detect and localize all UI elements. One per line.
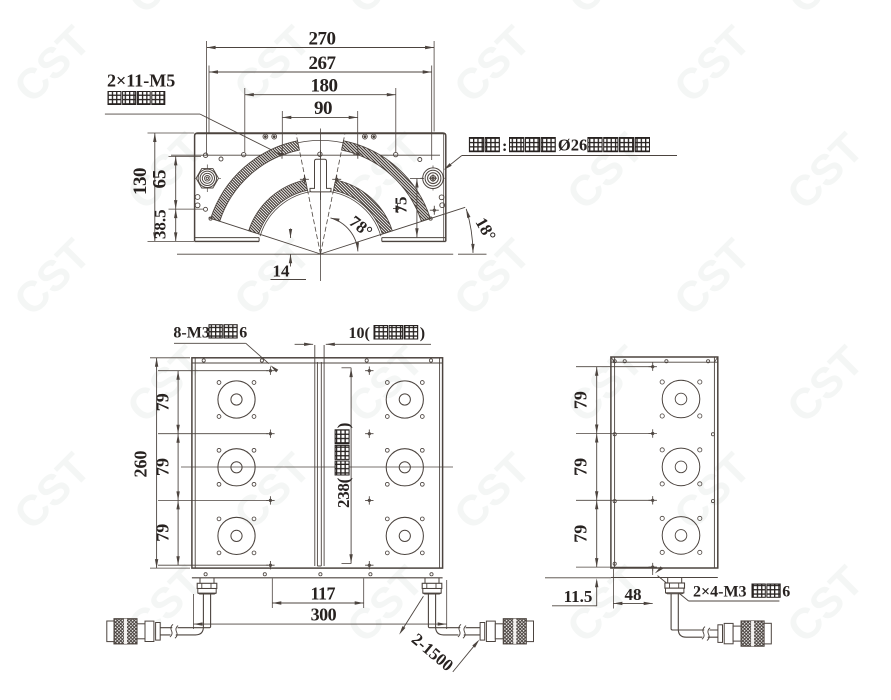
- svg-text:6: 6: [782, 584, 790, 601]
- svg-text:79: 79: [153, 393, 173, 411]
- svg-text:6: 6: [239, 324, 247, 341]
- svg-text:79: 79: [153, 524, 173, 542]
- svg-text:79: 79: [571, 391, 591, 409]
- svg-text:8-M3: 8-M3: [173, 324, 209, 341]
- svg-text:238(: 238(: [334, 477, 353, 508]
- svg-text:65: 65: [150, 170, 171, 189]
- svg-text:2×11-M5: 2×11-M5: [107, 71, 175, 91]
- svg-text:48: 48: [625, 585, 642, 604]
- svg-text:14: 14: [273, 262, 291, 281]
- svg-text:): ): [334, 423, 353, 429]
- svg-text:): ): [420, 325, 425, 342]
- svg-text:79: 79: [571, 525, 591, 543]
- svg-text:300: 300: [311, 605, 337, 625]
- svg-text:180: 180: [311, 76, 338, 97]
- svg-text:117: 117: [311, 583, 336, 603]
- svg-text:Ø26: Ø26: [558, 136, 587, 155]
- svg-text:90: 90: [314, 98, 332, 119]
- svg-text::: :: [502, 138, 507, 155]
- svg-text:2×4-M3: 2×4-M3: [693, 584, 747, 601]
- svg-text:260: 260: [131, 451, 151, 478]
- svg-text:267: 267: [309, 53, 337, 74]
- svg-text:38.5: 38.5: [151, 209, 170, 239]
- svg-text:75: 75: [392, 197, 411, 214]
- svg-text:270: 270: [309, 29, 336, 50]
- svg-text:10(: 10(: [349, 325, 370, 342]
- svg-text:79: 79: [153, 458, 173, 476]
- svg-text:130: 130: [130, 168, 151, 195]
- svg-text:11.5: 11.5: [564, 587, 593, 606]
- svg-text:79: 79: [571, 458, 591, 476]
